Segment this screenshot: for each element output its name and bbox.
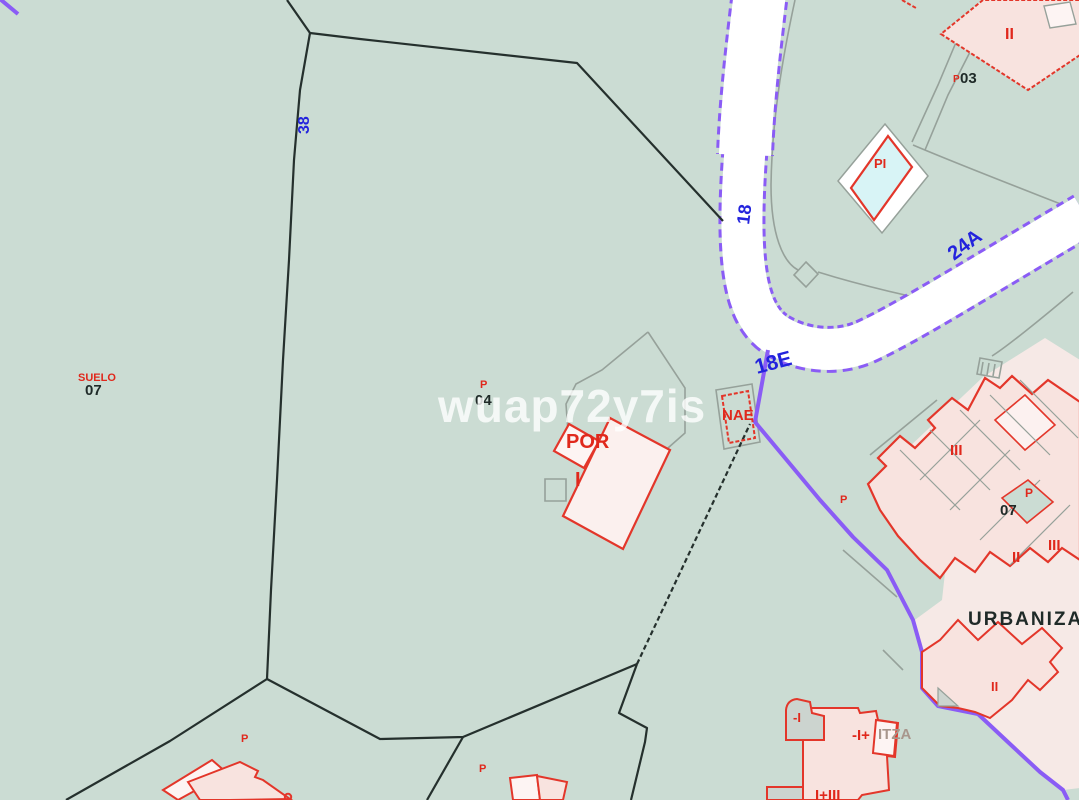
boundary-south xyxy=(267,664,637,739)
label-nae: NAE xyxy=(722,407,754,424)
pool-area xyxy=(838,124,928,233)
label-floor-i: I xyxy=(575,469,581,491)
label-p-block: P xyxy=(1025,486,1033,500)
label-urbaniza: URBANIZA xyxy=(968,609,1079,630)
label-por: POR xyxy=(566,431,610,453)
boundary-top xyxy=(287,0,723,221)
label-ii-low: II xyxy=(991,679,998,694)
label-p-bottomleft: P xyxy=(241,733,248,745)
road-label-18: 18 xyxy=(733,203,755,225)
building-bottomright-complex xyxy=(767,699,898,800)
label-07-left: 07 xyxy=(85,382,102,399)
building-bottomcenter xyxy=(510,775,567,800)
label-p-flag-03: P xyxy=(953,74,960,85)
label-i-plus-iii: I+III xyxy=(815,787,840,800)
watermark-text: wuap72y7is xyxy=(437,380,706,432)
label-minus-i: -I xyxy=(793,710,801,725)
label-iii-b: III xyxy=(1048,537,1061,554)
building-topright xyxy=(902,0,1079,90)
label-minus-i-plus: -I+ xyxy=(852,727,870,744)
road-label-18e: 18E xyxy=(752,347,794,379)
boundary-southeast xyxy=(619,664,647,800)
label-ii-mid: II xyxy=(1012,549,1020,566)
label-pi: PI xyxy=(874,156,886,171)
map-canvas: 38 18 18E 24A SUELO P POR I NAE PI II P … xyxy=(0,0,1079,800)
label-p-road: P xyxy=(840,494,847,506)
label-p-bottomcenter: P xyxy=(479,763,486,775)
road-label-38: 38 xyxy=(296,116,313,134)
cadastral-map: 38 18 18E 24A SUELO P POR I NAE PI II P … xyxy=(0,0,1079,800)
label-iii-a: III xyxy=(950,442,963,459)
building-bottomleft xyxy=(163,760,291,800)
label-07-right: 07 xyxy=(1000,502,1017,519)
label-03: 03 xyxy=(960,70,977,87)
label-itza: ITZA xyxy=(878,726,911,743)
label-ii-top: II xyxy=(1005,26,1014,43)
boundary-south-spur xyxy=(427,737,463,800)
